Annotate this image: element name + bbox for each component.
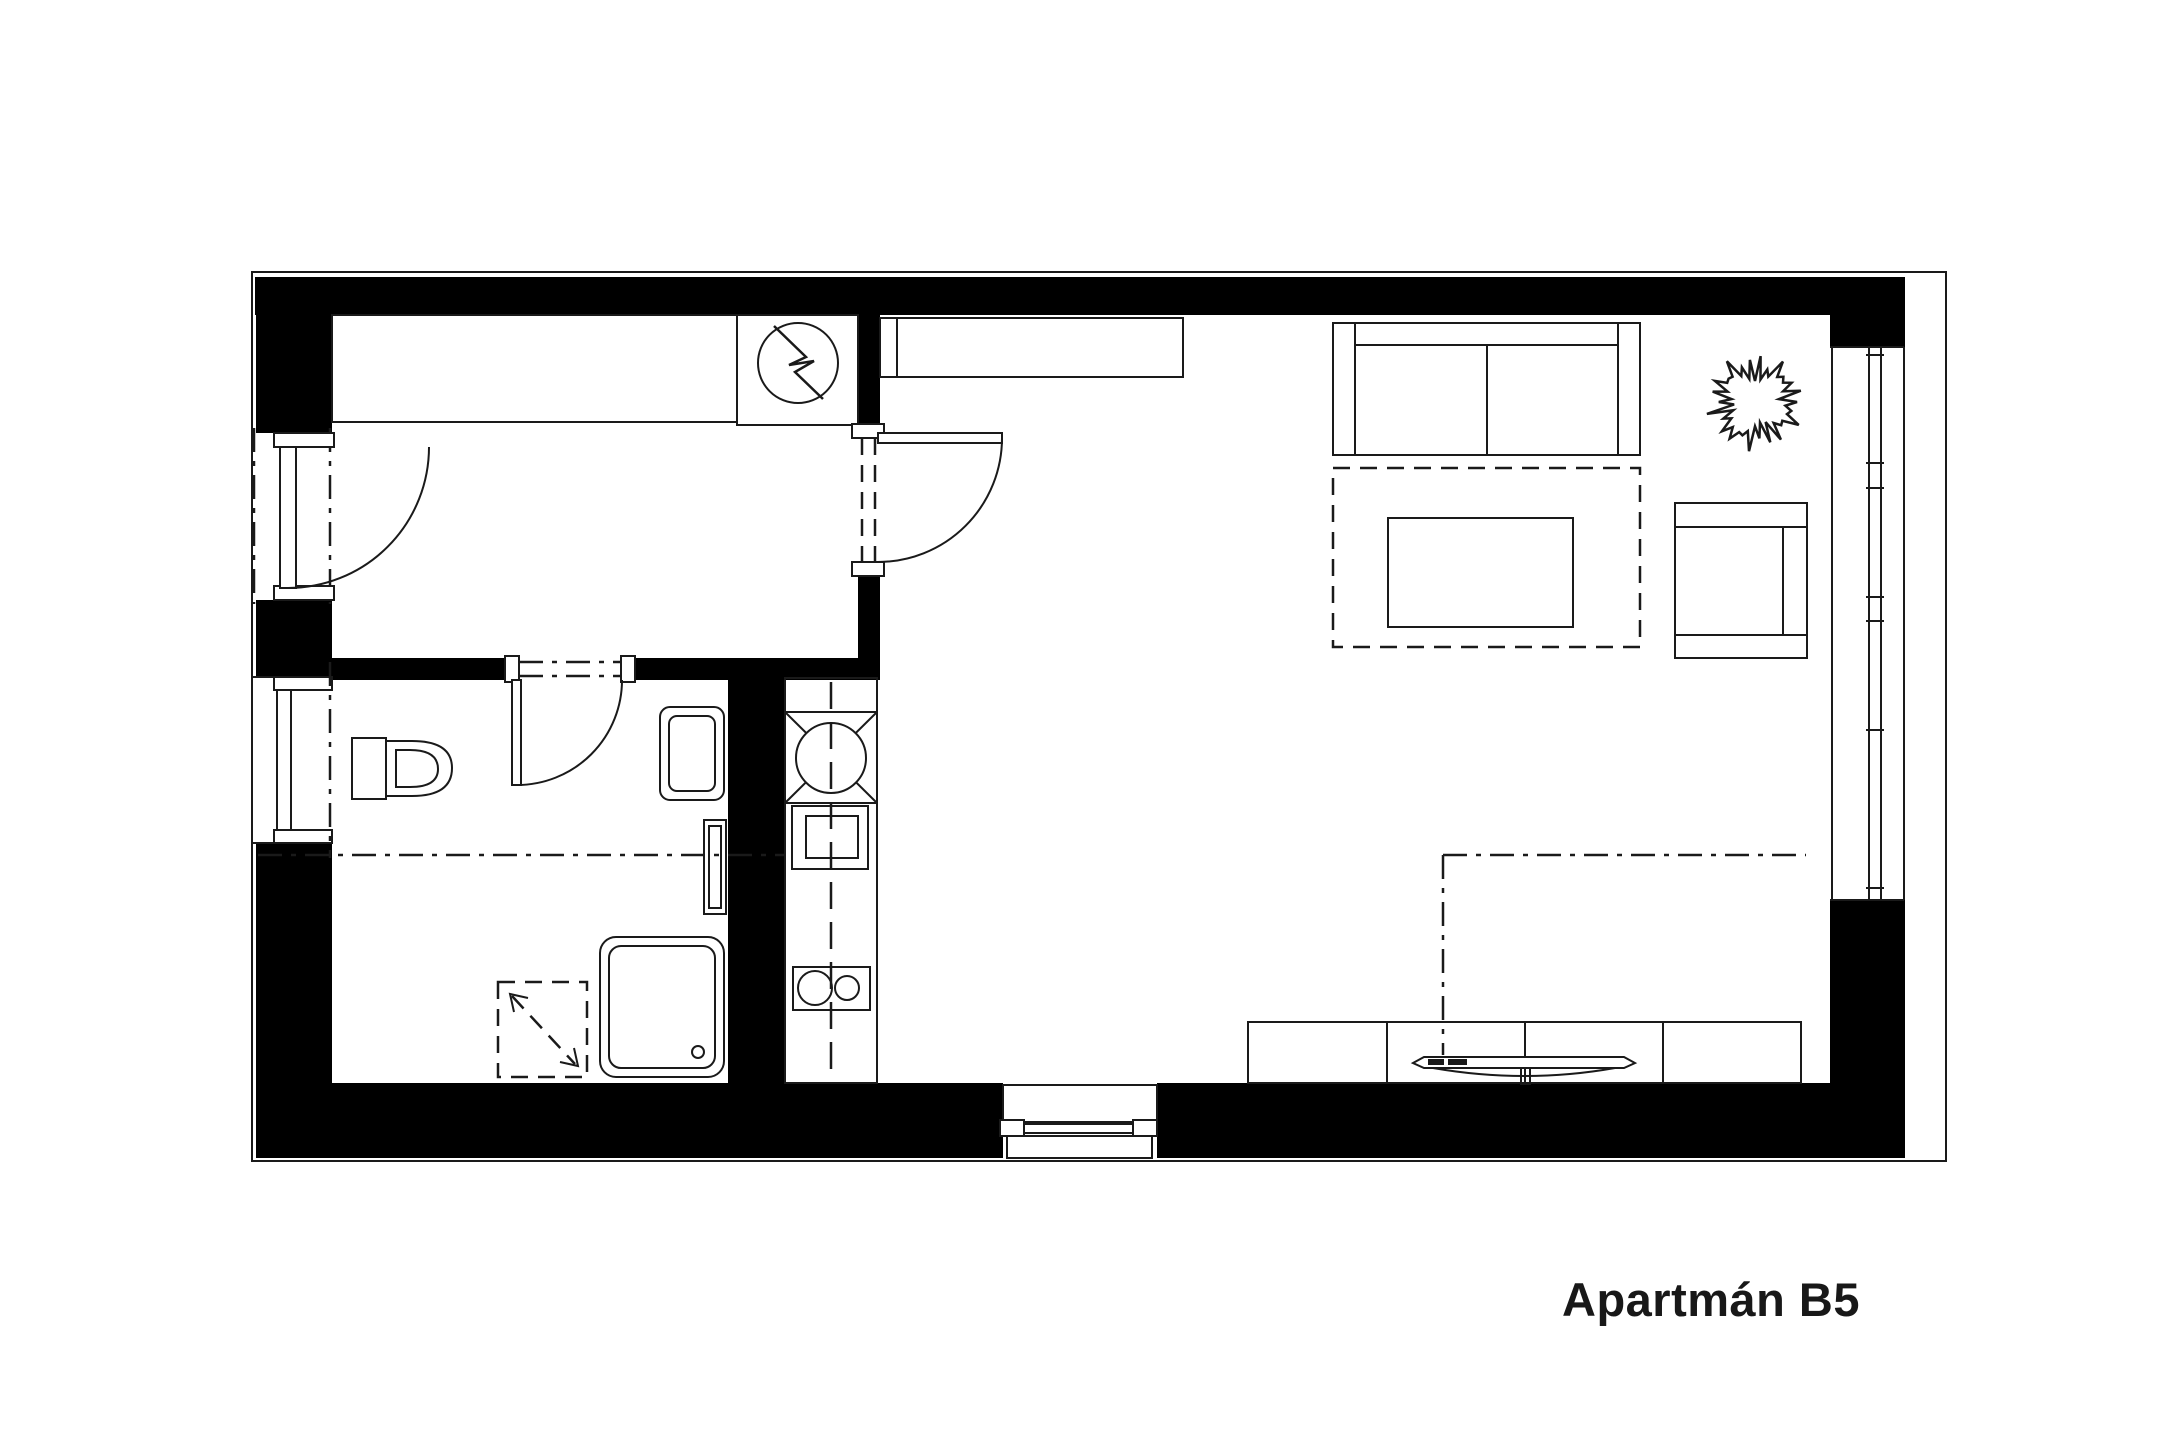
folding-table-top <box>1413 1057 1635 1068</box>
balcony-jamb-left <box>1000 1120 1024 1136</box>
plan-title: Apartmán B5 <box>1562 1272 1962 1327</box>
kitchenette <box>785 678 877 1083</box>
facade-outline <box>252 272 1946 1161</box>
sideboard <box>880 318 1183 377</box>
washbasin-inner <box>669 716 715 791</box>
bathroom-window <box>253 662 332 858</box>
armchair <box>1675 503 1807 658</box>
door-swing <box>878 438 1002 562</box>
floor-plan-page: Apartmán B5 <box>0 0 2160 1440</box>
balcony-door <box>1000 1083 1157 1160</box>
wall-hall-bathroom-right <box>635 658 858 680</box>
living-room <box>880 318 1807 1084</box>
shower-tray <box>600 937 724 1077</box>
washing-machine-arrow <box>512 996 575 1064</box>
bath-door-leaf <box>512 680 521 785</box>
bath-door-swing <box>517 680 622 785</box>
wall-hall-living-bottom <box>858 576 880 680</box>
wall-left-c <box>256 843 332 1083</box>
panoramic-window <box>1830 347 1904 900</box>
entry-door-leaf <box>280 447 296 588</box>
plant-icon <box>1707 356 1801 451</box>
hob-burner-small <box>835 976 859 1000</box>
towel-radiator <box>704 820 726 914</box>
window-sill-bottom <box>274 830 332 843</box>
window-sill-top <box>274 677 332 690</box>
built-in-wardrobe <box>332 315 737 422</box>
entry-door-jamb-top <box>274 433 334 447</box>
balcony-door-leaf <box>1024 1124 1133 1133</box>
wall-bottom-right <box>1157 1083 1905 1158</box>
wall-bottom-left <box>256 1083 1003 1158</box>
washing-machine <box>498 982 587 1077</box>
hob-burner-large <box>798 971 832 1005</box>
shower-drain <box>692 1046 704 1058</box>
bath-door-jamb-left <box>505 656 519 682</box>
walls <box>255 277 1905 1158</box>
table-item-b <box>1448 1059 1467 1065</box>
bathroom-door <box>505 656 635 785</box>
sofa <box>1333 323 1640 455</box>
wall-left-b <box>256 600 332 678</box>
wall-hall-living-top <box>858 315 880 425</box>
balcony-jamb-right <box>1133 1120 1157 1136</box>
toilet-bowl-inner <box>396 750 438 787</box>
sideboard-outline <box>880 318 1183 377</box>
wall-sofa <box>1248 1022 1801 1083</box>
wall-right-bottom <box>1830 900 1905 1083</box>
shower <box>600 937 724 1077</box>
bath-door-jamb-right <box>621 656 635 682</box>
entry-door-swing <box>288 447 429 588</box>
rug <box>1333 468 1640 647</box>
wall-top <box>255 277 1905 315</box>
wall-bathroom-kitchen <box>728 680 785 1083</box>
table-item-a <box>1428 1059 1444 1065</box>
loft-outline <box>1443 855 1806 1055</box>
shower-tray-inner <box>609 946 715 1068</box>
entry-door <box>254 428 429 604</box>
door-leaf <box>878 433 1002 443</box>
hall-living-door <box>852 424 1002 576</box>
wall-hall-bathroom-left <box>332 658 505 680</box>
floor-plan <box>0 0 2160 1440</box>
wall-left-a <box>256 315 332 433</box>
hall <box>332 315 858 425</box>
towel-radiator-inner <box>709 826 721 908</box>
door-jamb-bottom <box>852 562 884 576</box>
toilet-cistern <box>352 738 386 799</box>
wall-right-top-pier <box>1830 315 1905 347</box>
coffee-table <box>1388 518 1573 627</box>
